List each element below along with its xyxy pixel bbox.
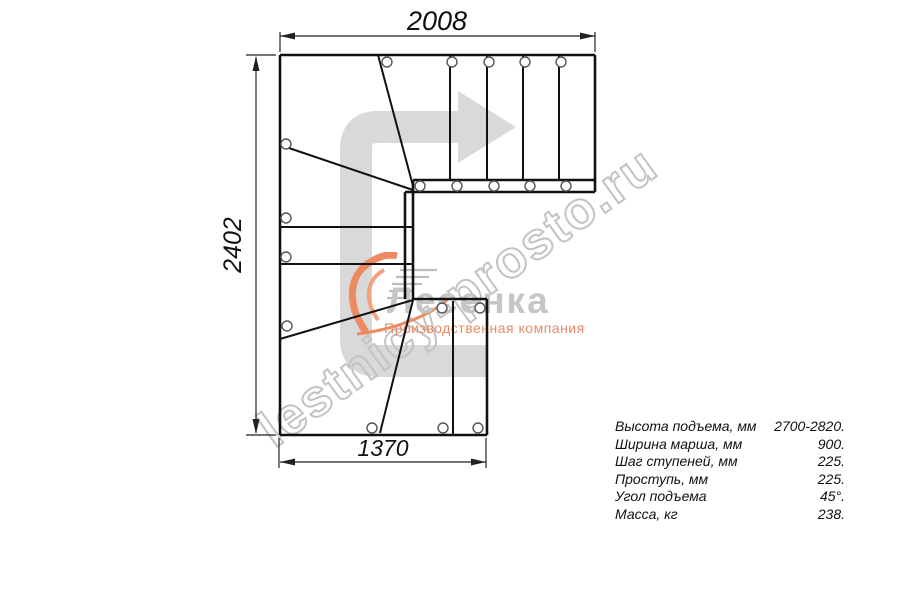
spec-row-step-pitch: Шаг ступеней, мм 225. [615, 453, 845, 471]
spec-value: 225. [818, 471, 845, 489]
spec-row-angle: Угол подъема 45°. [615, 488, 845, 506]
spec-row-tread: Проступь, мм 225. [615, 471, 845, 489]
dimension-arrowheads [253, 33, 596, 466]
dimension-left-height: 2402 [219, 217, 247, 274]
spec-value: 2700-2820. [774, 418, 845, 436]
spec-label: Высота подъема, мм [615, 418, 757, 436]
spec-row-height: Высота подъема, мм 2700-2820. [615, 418, 845, 436]
plan-outline [280, 55, 595, 435]
spec-value: 225. [818, 453, 845, 471]
dimension-bottom-width: 1370 [357, 435, 408, 461]
dimension-lines [246, 32, 595, 468]
spec-row-flight-width: Ширина марша, мм 900. [615, 436, 845, 454]
blueprint-canvas: lestnicy-prosto.ru Лесенка Производствен… [0, 0, 900, 600]
dimension-top-width: 2008 [406, 6, 467, 36]
spec-row-mass: Масса, кг 238. [615, 506, 845, 524]
tread-lines [280, 55, 559, 435]
spec-label: Шаг ступеней, мм [615, 453, 738, 471]
spec-label: Проступь, мм [615, 471, 708, 489]
screw-hole-markers [281, 57, 571, 433]
spec-value: 900. [818, 436, 845, 454]
spec-value: 238. [818, 506, 845, 524]
spec-value: 45°. [820, 488, 845, 506]
spec-list: Высота подъема, мм 2700-2820. Ширина мар… [615, 418, 845, 523]
spec-label: Ширина марша, мм [615, 436, 742, 454]
spec-label: Масса, кг [615, 506, 678, 524]
spec-label: Угол подъема [615, 488, 707, 506]
